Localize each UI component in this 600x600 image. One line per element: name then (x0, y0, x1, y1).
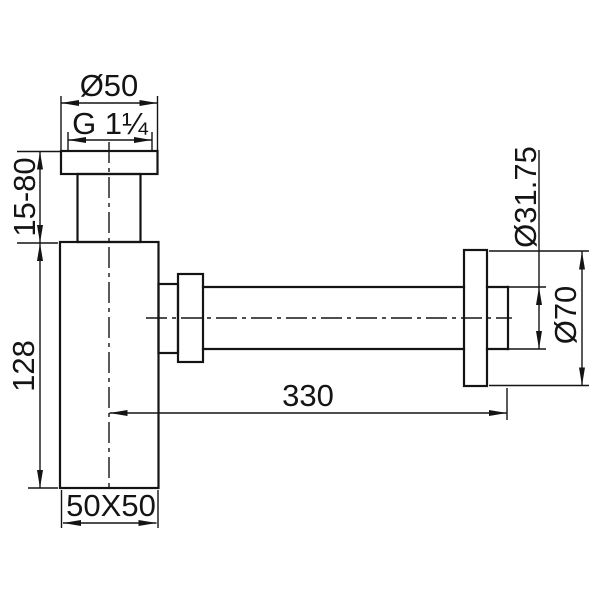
label-outlet-pipe-diameter: Ø31.75 (508, 146, 543, 248)
dimension-label-group: Ø50 G 1¼ 15-80 128 330 50X50 Ø31.75 Ø70 (6, 68, 583, 523)
trap-outline-group (60, 151, 508, 488)
label-top-flange-diameter: Ø50 (80, 68, 139, 103)
label-outlet-length: 330 (282, 378, 334, 413)
extension-line-group (17, 96, 589, 528)
label-thread-size: G 1¼ (72, 106, 149, 141)
bottle-trap-technical-drawing: Ø50 G 1¼ 15-80 128 330 50X50 Ø31.75 Ø70 (0, 0, 600, 600)
centerline-group (109, 142, 512, 488)
label-body-height: 128 (6, 340, 41, 392)
dimension-line-group (40, 103, 582, 523)
label-inlet-height-range: 15-80 (7, 157, 42, 236)
label-body-section: 50X50 (66, 488, 156, 523)
drawing-canvas: Ø50 G 1¼ 15-80 128 330 50X50 Ø31.75 Ø70 (0, 0, 600, 600)
label-wall-flange-diameter: Ø70 (548, 286, 583, 345)
